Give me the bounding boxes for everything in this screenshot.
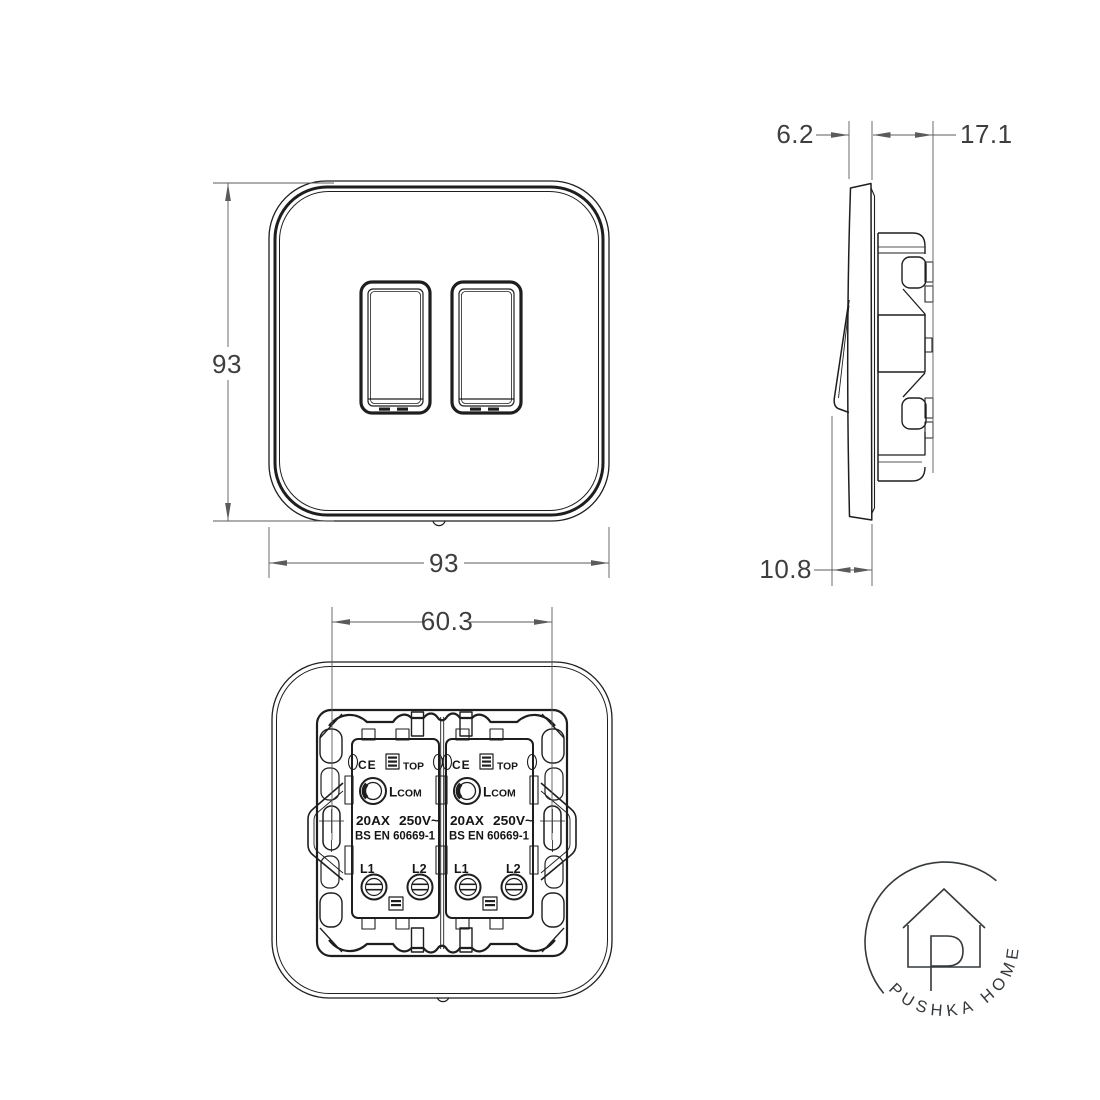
- plate-bottom-notch: [433, 522, 445, 526]
- terminal-common-label: LCOM: [483, 785, 516, 800]
- terminal-clip: [925, 338, 932, 352]
- clamp-icon: [483, 897, 497, 910]
- top-label: TOP: [403, 761, 424, 773]
- fixing-centres-label: 60.3: [421, 606, 474, 636]
- front-plate: [269, 181, 609, 526]
- top-label: TOP: [497, 761, 518, 773]
- switch-module-2: CE TOP LCOM 20AX 250V~ BS EN 60669-1 L1 …: [439, 729, 538, 929]
- mounting-lug-right: [540, 729, 576, 927]
- rating-amps: 20AX: [450, 813, 484, 828]
- frame-bottom-edge: [329, 940, 555, 953]
- rocker-switch-1: [361, 282, 430, 413]
- side-rocker: [834, 300, 849, 413]
- switch-protrusion-label: 10.8: [759, 554, 812, 584]
- mechanism-depth-label: 17.1: [960, 119, 1013, 149]
- house-icon: [903, 889, 985, 967]
- terminal-clip: [925, 422, 933, 438]
- technical-drawing-page: 93 93: [0, 0, 1100, 1100]
- front-height-label: 93: [212, 349, 242, 379]
- plate-thickness-label: 6.2: [776, 119, 814, 149]
- fixing-centres-dimension: 60.3: [332, 606, 552, 840]
- drawing-canvas: 93 93: [0, 0, 1100, 1100]
- insulation-class-icon: [480, 754, 493, 769]
- standard-label: BS EN 60669-1: [449, 829, 529, 843]
- brand-name: PUSHKA HOME: [885, 942, 1023, 1020]
- rating-amps: 20AX: [356, 813, 390, 828]
- front-height-dimension: 93: [212, 183, 334, 521]
- frame-top-edge: [329, 714, 555, 727]
- side-thickness-dimension: 6.2: [776, 119, 872, 180]
- letter-p-icon: [931, 936, 963, 991]
- common-terminal-screw: [454, 778, 480, 804]
- rating-volts: 250V~: [399, 813, 439, 828]
- frame-slot: [412, 712, 424, 736]
- brand-logo: PUSHKA HOME: [865, 862, 1023, 1020]
- common-terminal-screw: [360, 778, 386, 804]
- frame-slot: [460, 712, 472, 736]
- side-plate: [848, 184, 875, 521]
- terminal-screw: [362, 875, 387, 900]
- terminal-screw: [502, 875, 527, 900]
- insulation-class-icon: [386, 754, 399, 769]
- side-mounting-box: [878, 233, 933, 481]
- standard-label: BS EN 60669-1: [355, 829, 435, 843]
- front-width-label: 93: [429, 548, 459, 578]
- ce-mark: CE: [358, 758, 377, 772]
- clamp-icon: [389, 897, 403, 910]
- terminal-screw: [456, 875, 481, 900]
- front-width-dimension: 93: [269, 527, 609, 578]
- terminal-screw: [408, 875, 433, 900]
- rocker-switch-2: [452, 282, 521, 413]
- mounting-lug-left: [308, 729, 344, 927]
- rating-volts: 250V~: [493, 813, 533, 828]
- side-protrusion-dimension: 10.8: [759, 416, 872, 586]
- side-view: 6.2 17.1 10.8: [759, 119, 1012, 586]
- terminal-common-label: LCOM: [389, 785, 422, 800]
- switch-module-1: CE TOP LCOM 20AX 250V~ BS EN 60669-1 L1 …: [345, 729, 444, 929]
- terminal-clip: [925, 286, 933, 302]
- back-view: CE TOP LCOM 20AX 250V~ BS EN 60669-1 L1 …: [272, 606, 612, 1002]
- side-depth-dimension: 17.1: [873, 119, 1013, 473]
- front-view: 93 93: [212, 181, 609, 578]
- ce-mark: CE: [452, 758, 471, 772]
